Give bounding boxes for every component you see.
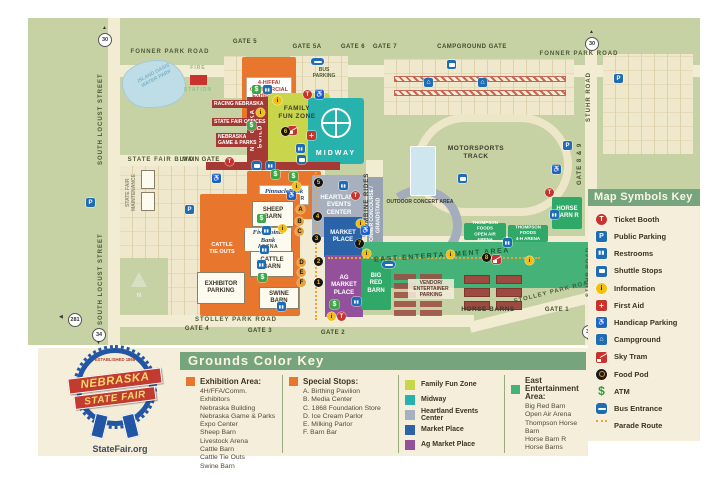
map-label-state-fair-maintenance: STATE FAIR MAINTENANCE — [125, 172, 137, 214]
restroom-icon — [596, 248, 607, 259]
ticket-icon — [545, 188, 554, 197]
building-exhibitor-parking: EXHIBITOR PARKING — [197, 272, 245, 304]
map-label-main-gate: MAIN GATE — [178, 157, 224, 164]
color-key-column-4: East Entertainment Area:Big Red BarnOpen… — [504, 375, 586, 453]
shuttle-stop-7: 7 — [355, 239, 364, 248]
restroom-icon — [277, 302, 286, 311]
vendor-parking-row — [420, 310, 442, 316]
color-key-line-f-barn-bar: F. Barn Bar — [303, 429, 394, 437]
firstaid-icon — [307, 131, 316, 140]
compass: N — [126, 264, 152, 300]
color-key-item-market-place: Market Place — [405, 422, 500, 437]
compass-label: N — [126, 293, 152, 301]
color-key-heading-row: Exhibition Area: — [186, 377, 278, 386]
building-fire-station — [190, 75, 207, 85]
color-key-line-4h-ffa-comm-exhibitors: 4H/FFA/Comm. Exhibitors — [200, 388, 278, 405]
atm-icon — [289, 172, 298, 181]
color-key-item-heartland-events-center: Heartland Events Center — [405, 407, 500, 422]
map-label-stolley-park-road: STOLLEY PARK ROAD — [184, 317, 288, 324]
color-key-line-a-birthing-pavilion: A. Birthing Pavilion — [303, 388, 394, 396]
handicap-icon — [361, 226, 370, 235]
info-icon — [292, 182, 301, 191]
key-item-first-aid: First Aid — [596, 297, 700, 314]
horse-barn — [464, 288, 490, 297]
color-key-heading: East Entertainment Area: — [525, 377, 582, 401]
color-key-heading: Exhibition Area: — [200, 378, 261, 386]
parade-icon — [596, 420, 607, 431]
color-key-column-3: Family Fun ZoneMidwayHeartland Events Ce… — [398, 375, 504, 453]
map-label-30: 30 — [585, 37, 599, 51]
map-label-campground-gate: CAMPGROUND GATE — [424, 44, 520, 51]
map-label-gate-1: GATE 1 — [538, 307, 576, 314]
key-item-parade-route: Parade Route — [596, 417, 700, 434]
shuttle-stop-2: 2 — [314, 257, 323, 266]
color-swatch — [405, 395, 415, 405]
color-key-column-2: Special Stops:A. Birthing PavilionB. Med… — [282, 375, 398, 453]
map-label-outdoor-concert-area: OUTDOOR CONCERT AREA — [384, 199, 456, 205]
color-swatch — [289, 377, 298, 386]
info-icon — [525, 256, 534, 265]
skytram-icon — [492, 255, 501, 264]
color-key-item-family-fun-zone: Family Fun Zone — [405, 377, 500, 392]
map-label-south-locust-street: SOUTH LOCUST STREET — [98, 232, 105, 327]
shuttle-stop-3: 3 — [312, 234, 321, 243]
color-key-line-livestock-arena: Livestock Arena — [200, 438, 278, 446]
map-label-281: 281 — [68, 313, 82, 327]
color-key-item-ag-market-place: Ag Market Place — [405, 437, 500, 452]
campground-hatch-row-2 — [394, 90, 566, 96]
map-label-family-fun-zone: FAMILY FUN ZONE — [271, 105, 323, 121]
color-key-line-sheep-barn: Sheep Barn — [200, 429, 278, 437]
map-label-fonner-park-road: FONNER PARK ROAD — [124, 49, 216, 56]
color-key-line-e-milking-parlor: E. Milking Parlor — [303, 421, 394, 429]
map-label-gate-4: GATE 4 — [178, 326, 216, 333]
shuttle-stop-6: 6 — [281, 127, 290, 136]
color-key-line-cattle-tie-outs: Cattle Tie Outs — [200, 454, 278, 462]
key-item-label: Handicap Parking — [614, 319, 677, 327]
building-big-red-barn-label: BIG RED BARN — [367, 273, 384, 296]
key-item-label: Bus Entrance — [614, 405, 662, 413]
parking-icon — [86, 198, 95, 207]
building-cattle-tie-outs-label: CATTLE TIE OUTS — [209, 242, 234, 256]
horse-barn — [496, 275, 522, 284]
map-symbols-key-panel: Map Symbols Key Ticket BoothPublic Parki… — [588, 189, 700, 441]
logo-badge: ESTABLISHED 1868 NEBRASKA STATE FAIR — [76, 348, 154, 426]
lot-stuhr-east — [603, 54, 693, 154]
skytram-icon — [596, 352, 607, 363]
key-item-label: Campground — [614, 336, 661, 344]
key-item-atm: ATM — [596, 383, 700, 400]
building-exhibitor-parking-label: EXHIBITOR PARKING — [205, 281, 238, 296]
handicap-icon — [552, 165, 561, 174]
camp-icon — [424, 78, 433, 87]
color-key-heading: Special Stops: — [303, 378, 358, 386]
restroom-icon — [550, 210, 559, 219]
key-item-label: Parade Route — [614, 422, 662, 430]
atm-icon — [257, 214, 266, 223]
building-thompson-open-air-arena: THOMPSON FOODS OPEN AIR ARENA — [464, 223, 506, 240]
map-label-gate-8-9: GATE 8 & 9 — [577, 138, 584, 190]
building-thompson-open-air-arena-label: THOMPSON FOODS OPEN AIR ARENA — [466, 220, 504, 243]
info-icon — [596, 283, 607, 294]
horse-barn — [496, 288, 522, 297]
key-item-label: Restrooms — [614, 250, 653, 258]
busentrance-icon — [382, 261, 395, 268]
info-icon — [446, 250, 455, 259]
ticket-icon — [303, 90, 312, 99]
ticket-icon — [351, 191, 360, 200]
building-ag-market-place-label: AG MARKET PLACE — [331, 275, 357, 298]
handicap-icon — [596, 317, 607, 328]
zone-midway-label: MIDWAY — [308, 150, 364, 159]
key-item-label: ATM — [614, 388, 630, 396]
special-stop-B: B — [295, 217, 304, 226]
map-label-gate-5: GATE 5 — [226, 39, 264, 46]
info-icon — [273, 96, 282, 105]
key-item-label: Information — [614, 285, 655, 293]
building-cattle-tie-outs: CATTLE TIE OUTS — [202, 236, 242, 262]
key-item-ticket-booth: Ticket Booth — [596, 211, 700, 228]
vendor-parking-row — [394, 301, 416, 307]
color-swatch — [186, 377, 195, 386]
color-key-line-horse-barns: Horse Barns — [525, 444, 582, 452]
shuttle-stop-1: 1 — [314, 278, 323, 287]
map-label-racing-nebraska: RACING NEBRASKA — [212, 100, 265, 108]
color-key-item-label: Midway — [421, 396, 446, 403]
logo-website: StateFair.org — [58, 445, 182, 454]
map-label-station: STATION — [176, 87, 220, 93]
color-key-heading-row: East Entertainment Area: — [511, 377, 582, 401]
map-label-stuhr-road: STUHR ROAD — [586, 68, 593, 126]
color-key-line-swine-barn: Swine Barn — [200, 463, 278, 471]
key-item-campground: Campground — [596, 331, 700, 348]
color-swatch — [511, 385, 520, 394]
color-swatch — [405, 440, 415, 450]
color-key-heading-row: Special Stops: — [289, 377, 394, 386]
parking-icon — [185, 205, 194, 214]
horse-barn — [464, 275, 490, 284]
map-label-nebraska-game-parks: NEBRASKA GAME & PARKS — [216, 133, 259, 147]
nebraska-state-fair-map-page: 4-H/FFA/ COMMERCIAL EXHIBITORSNEBRASKA B… — [0, 0, 728, 488]
handicap-icon — [287, 191, 296, 200]
busentrance-icon — [311, 58, 324, 65]
color-key-line-d-ice-cream-parlor: D. Ice Cream Parlor — [303, 413, 394, 421]
map-label-gate-2: GATE 2 — [314, 330, 352, 337]
color-swatch — [405, 425, 415, 435]
map-label-south-locust-street: SOUTH LOCUST STREET — [98, 72, 105, 167]
map-label-horse-barns: HORSE BARNS — [456, 306, 520, 314]
special-stop-D: D — [297, 258, 306, 267]
map-label-bus-parking: BUS PARKING — [308, 67, 340, 79]
restroom-icon — [352, 297, 361, 306]
atm-icon — [258, 273, 267, 282]
building-thompson-4h-arena: THOMPSON FOODS 4-H ARENA — [508, 225, 548, 242]
parking-icon — [563, 141, 572, 150]
road-stolley-park — [114, 315, 474, 327]
map-label-fonner-park-road: FONNER PARK ROAD — [533, 51, 625, 58]
camp-icon — [478, 78, 487, 87]
atm-icon — [252, 85, 261, 94]
map-label-motorsports-track: MOTORSPORTS TRACK — [434, 145, 518, 161]
color-key-line-expo-center: Expo Center — [200, 421, 278, 429]
map-label-vendor-entertainer-parking: VENDOR/ ENTERTAINER PARKING — [408, 279, 454, 299]
vendor-parking-row — [394, 310, 416, 316]
building-maintenance-north — [141, 170, 155, 189]
ticket-icon — [596, 214, 607, 225]
foodpod-icon — [596, 369, 607, 380]
ticket-icon — [225, 157, 234, 166]
handicap-icon — [315, 90, 324, 99]
shuttle-stop-8: 8 — [482, 253, 491, 262]
key-item-bus-entrance: Bus Entrance — [596, 400, 700, 417]
color-key-line-b-media-center: B. Media Center — [303, 396, 394, 404]
symbols-key-list: Ticket BoothPublic ParkingRestroomsShutt… — [588, 206, 700, 434]
building-market-place-label: MARKET PLACE — [330, 230, 356, 245]
parade-route-vertical — [315, 172, 317, 320]
shuttle-icon — [458, 174, 467, 183]
map-label-fire: FIRE — [178, 65, 218, 71]
color-key-line-cattle-barn: Cattle Barn — [200, 446, 278, 454]
key-item-sky-tram: Sky Tram — [596, 349, 700, 366]
color-key-item-label: Ag Market Place — [421, 441, 475, 448]
color-key-line-big-red-barn: Big Red Barn — [525, 403, 582, 411]
color-swatch — [405, 380, 415, 390]
map-symbols-key-title: Map Symbols Key — [588, 189, 700, 206]
color-key-columns: Exhibition Area:4H/FFA/Comm. ExhibitorsN… — [180, 375, 586, 453]
key-item-public-parking: Public Parking — [596, 228, 700, 245]
restroom-icon — [262, 226, 271, 235]
map-label-30: 30 — [98, 33, 112, 47]
shuttle-icon — [596, 266, 607, 277]
shuttle-stop-4: 4 — [313, 212, 322, 221]
atm-icon — [330, 300, 339, 309]
busentrance-icon — [596, 403, 607, 414]
special-stop-F: F — [297, 278, 306, 287]
atm-icon — [271, 170, 280, 179]
color-key-item-label: Family Fun Zone — [421, 381, 477, 388]
parking-icon — [596, 231, 607, 242]
color-key-item-midway: Midway — [405, 392, 500, 407]
special-stop-C: C — [295, 227, 304, 236]
color-key-item-label: Heartland Events Center — [421, 408, 500, 422]
key-item-food-pod: Food Pod — [596, 366, 700, 383]
atm-icon — [596, 386, 607, 397]
color-key-line-open-air-arena: Open Air Arena — [525, 411, 582, 419]
key-item-label: Food Pod — [614, 371, 649, 379]
parking-icon — [614, 74, 623, 83]
info-icon — [278, 224, 287, 233]
lot-campground — [384, 59, 574, 115]
camp-icon — [596, 334, 607, 345]
outdoor-pool — [410, 146, 436, 196]
map-label-x: ▲ — [102, 25, 107, 31]
restroom-icon — [503, 238, 512, 247]
color-key-column-1: Exhibition Area:4H/FFA/Comm. ExhibitorsN… — [180, 375, 282, 453]
info-icon — [327, 312, 336, 321]
nebraska-state-fair-logo: ESTABLISHED 1868 NEBRASKA STATE FAIR Sta… — [58, 338, 182, 456]
road-south-locust — [108, 18, 120, 345]
map-label-gate-5a: GATE 5A — [286, 44, 328, 51]
restroom-icon — [266, 161, 275, 170]
shuttle-stop-5: 5 — [314, 178, 323, 187]
key-item-shuttle-stops: Shuttle Stops — [596, 263, 700, 280]
map-label-state-fair-offices: STATE FAIR OFFICES — [212, 118, 267, 126]
key-item-label: Public Parking — [614, 233, 666, 241]
shuttle-icon — [447, 60, 456, 69]
key-item-information: Information — [596, 280, 700, 297]
shuttle-icon — [297, 155, 306, 164]
color-swatch — [405, 410, 415, 420]
restroom-icon — [263, 85, 272, 94]
color-key-line-thompson-horse-barn: Thompson Horse Barn — [525, 420, 582, 437]
logo-established-text: ESTABLISHED 1868 — [82, 358, 148, 362]
color-key-line-nebraska-building: Nebraska Building — [200, 405, 278, 413]
info-icon — [362, 249, 371, 258]
vendor-parking-row — [420, 301, 442, 307]
key-item-handicap-parking: Handicap Parking — [596, 314, 700, 331]
grounds-color-key-title: Grounds Color Key — [180, 352, 586, 370]
map-label-gate-3: GATE 3 — [241, 328, 279, 335]
key-item-label: Ticket Booth — [614, 216, 659, 224]
building-thompson-4h-arena-label: THOMPSON FOODS 4-H ARENA — [510, 225, 546, 242]
ferris-wheel — [321, 108, 351, 138]
atm-icon — [247, 121, 256, 130]
key-item-restrooms: Restrooms — [596, 245, 700, 262]
info-icon — [256, 108, 265, 117]
shuttle-icon — [252, 161, 261, 170]
ticket-icon — [337, 312, 346, 321]
map-label-gate-7: GATE 7 — [366, 44, 404, 51]
restroom-icon — [296, 144, 305, 153]
building-maintenance-south — [141, 192, 155, 211]
firstaid-icon — [596, 300, 607, 311]
special-stop-E: E — [297, 268, 306, 277]
handicap-icon — [212, 174, 221, 183]
key-item-label: Shuttle Stops — [614, 267, 662, 275]
restroom-icon — [257, 260, 266, 269]
color-key-line-c-1868-foundation-store: C. 1868 Foundation Store — [303, 405, 394, 413]
color-key-line-horse-barn-r: Horse Barn R — [525, 436, 582, 444]
color-key-line-nebraska-game-parks: Nebraska Game & Parks — [200, 413, 278, 421]
map-label-x: ▲ — [589, 29, 594, 35]
restroom-icon — [260, 245, 269, 254]
special-stop-A: A — [296, 205, 305, 214]
map-label-x: ◀ — [59, 314, 63, 320]
restroom-icon — [339, 181, 348, 190]
color-key-item-label: Market Place — [421, 426, 464, 433]
key-item-label: First Aid — [614, 302, 644, 310]
key-item-label: Sky Tram — [614, 353, 647, 361]
